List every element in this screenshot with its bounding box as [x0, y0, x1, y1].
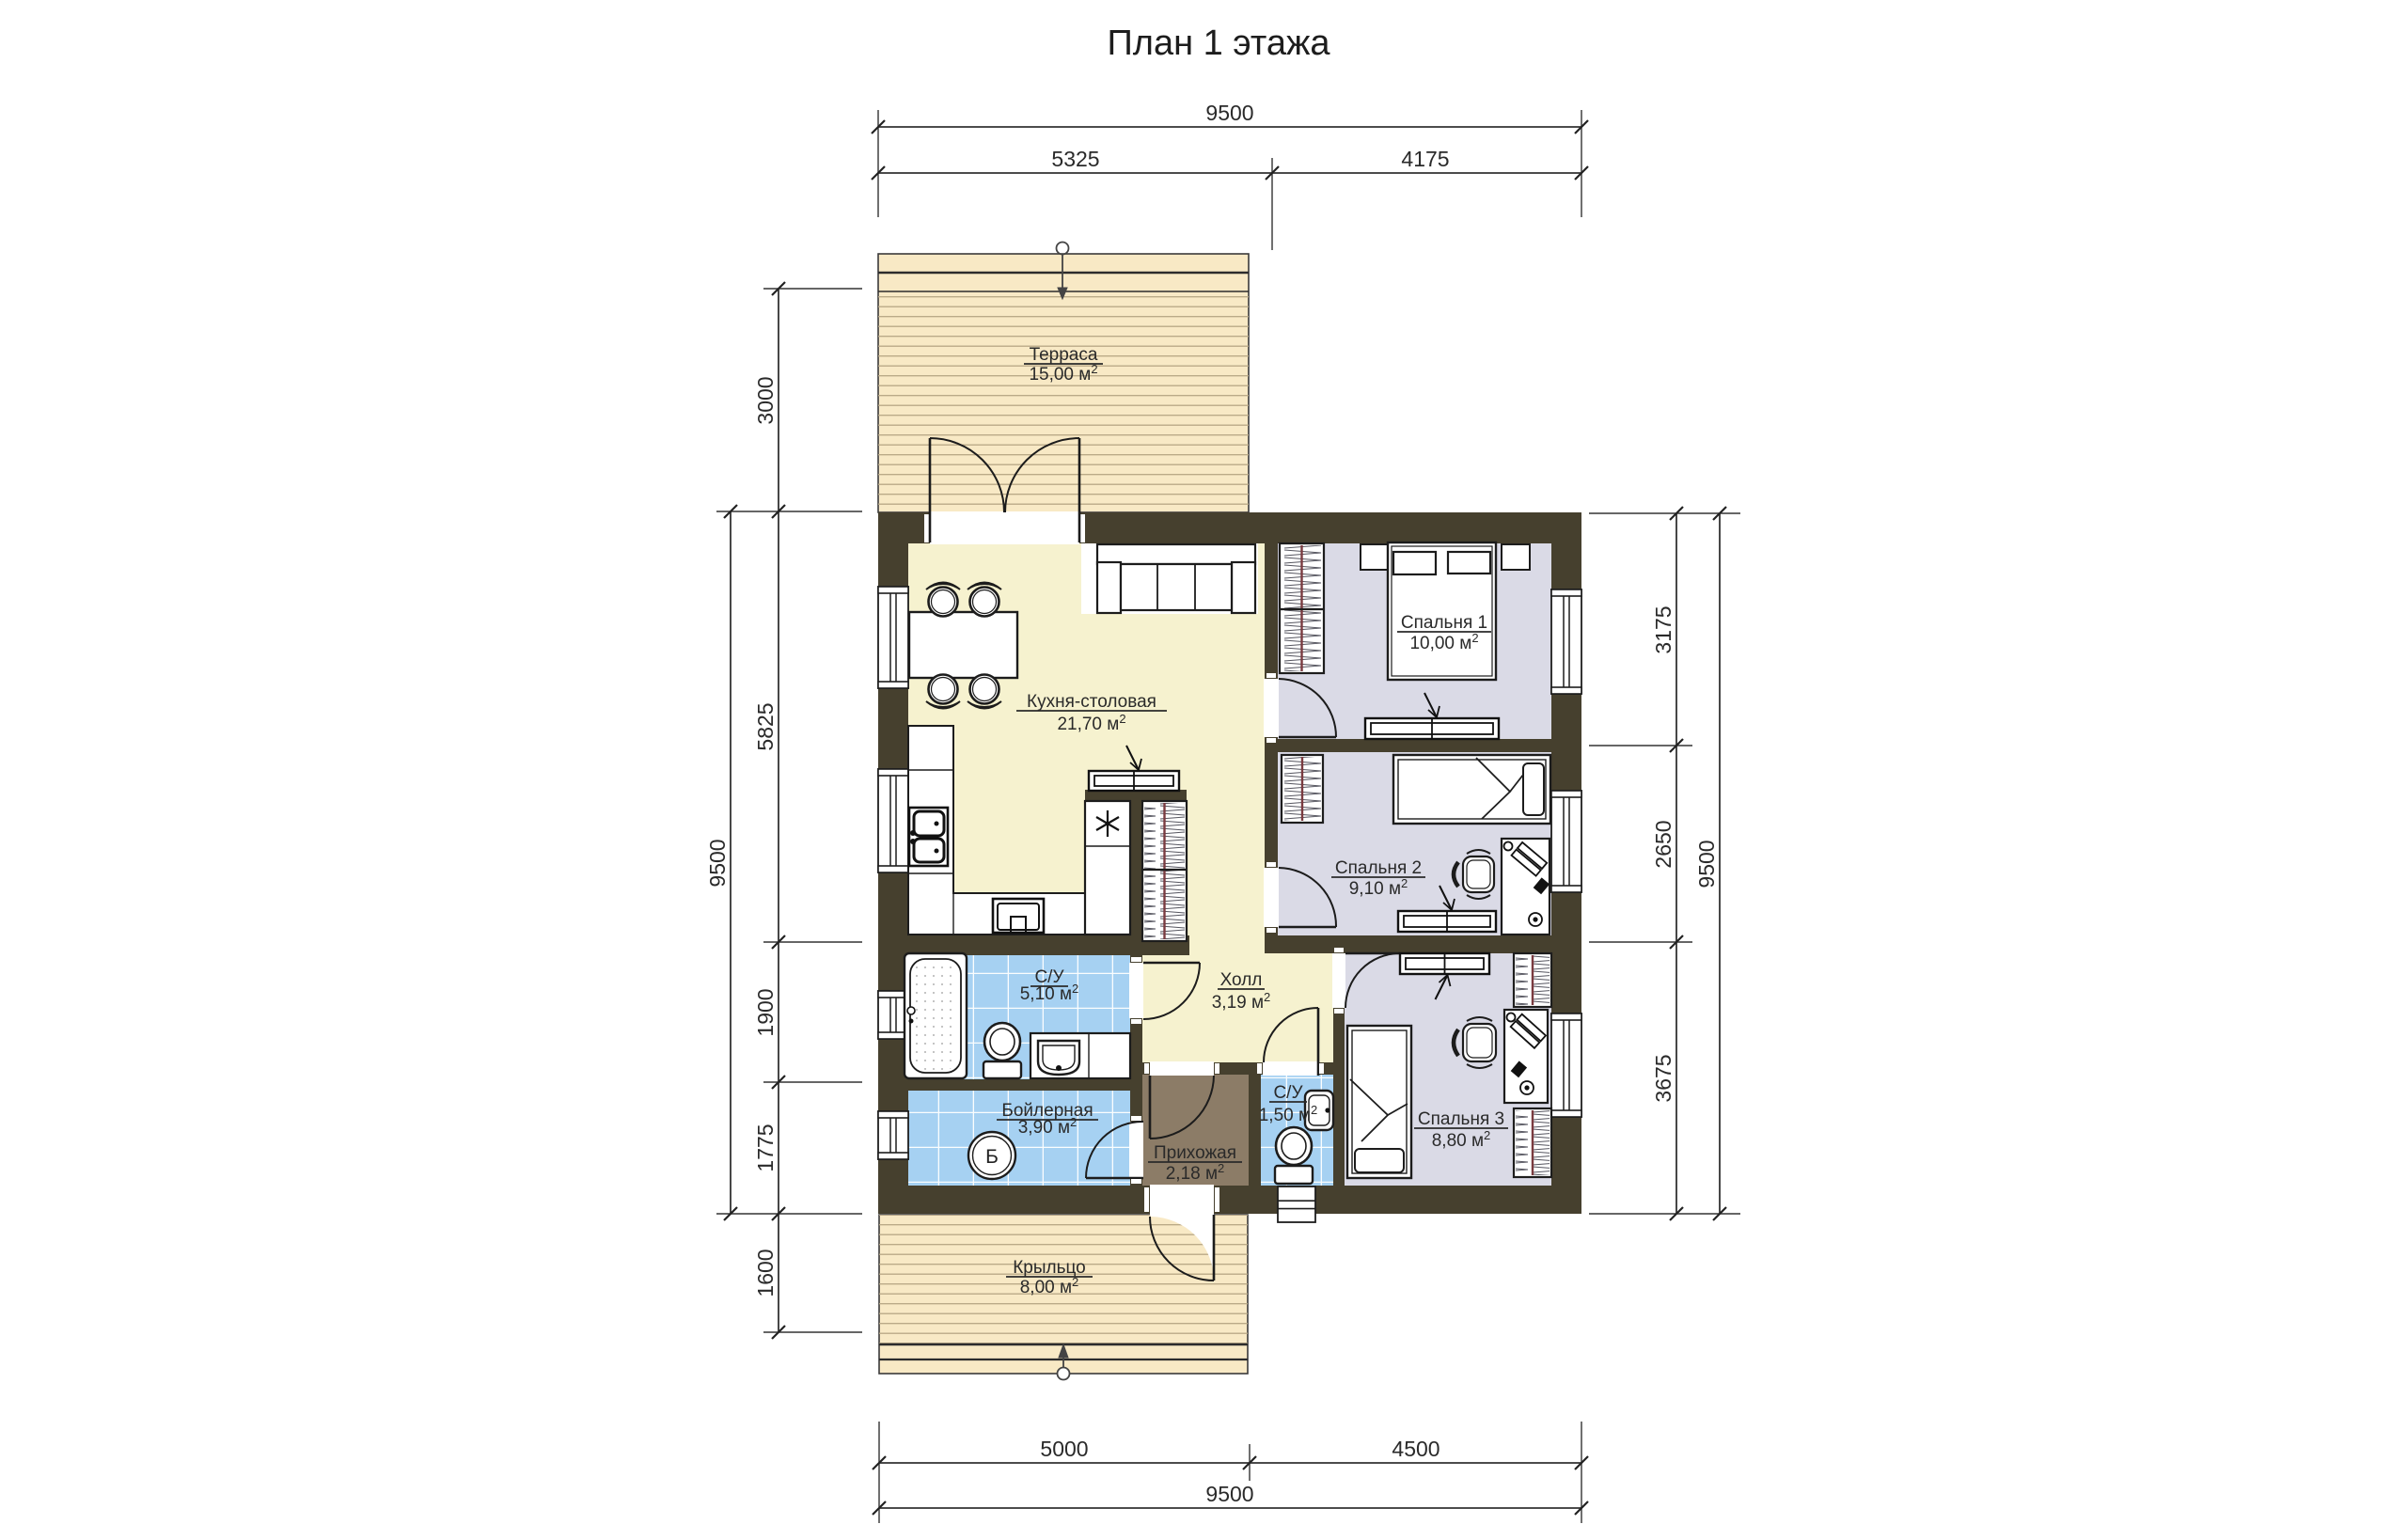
svg-text:Холл: Холл [1220, 970, 1263, 990]
svg-text:8,80 м2: 8,80 м2 [1432, 1128, 1491, 1151]
svg-text:2650: 2650 [1651, 820, 1675, 868]
svg-text:1,50 м2: 1,50 м2 [1259, 1103, 1318, 1125]
svg-text:9500: 9500 [1205, 101, 1253, 125]
svg-text:9,10 м2: 9,10 м2 [1349, 876, 1408, 899]
svg-text:9500: 9500 [1694, 840, 1719, 888]
svg-text:Спальня 1: Спальня 1 [1401, 613, 1487, 633]
svg-text:1600: 1600 [753, 1249, 778, 1296]
svg-text:5825: 5825 [753, 702, 778, 750]
svg-text:План 1 этажа: План 1 этажа [1107, 24, 1330, 63]
svg-text:10,00 м2: 10,00 м2 [1409, 631, 1478, 653]
svg-text:5000: 5000 [1040, 1437, 1088, 1461]
svg-text:3,19 м2: 3,19 м2 [1212, 990, 1271, 1013]
svg-text:21,70 м2: 21,70 м2 [1057, 712, 1125, 734]
svg-text:Спальня 2: Спальня 2 [1335, 858, 1422, 878]
svg-text:3675: 3675 [1651, 1054, 1675, 1102]
svg-text:5325: 5325 [1051, 147, 1099, 171]
svg-text:Терраса: Терраса [1030, 345, 1098, 365]
svg-text:1775: 1775 [753, 1124, 778, 1171]
svg-text:Кухня-столовая: Кухня-столовая [1027, 692, 1156, 712]
svg-text:1900: 1900 [753, 988, 778, 1036]
svg-text:С/У: С/У [1273, 1083, 1303, 1103]
svg-text:4500: 4500 [1392, 1437, 1439, 1461]
svg-text:9500: 9500 [1205, 1482, 1253, 1506]
svg-text:3175: 3175 [1651, 605, 1675, 653]
svg-text:2,18 м2: 2,18 м2 [1166, 1161, 1225, 1184]
svg-text:Прихожая: Прихожая [1154, 1143, 1236, 1163]
svg-text:3000: 3000 [753, 376, 778, 424]
svg-text:Спальня 3: Спальня 3 [1418, 1109, 1504, 1129]
svg-text:Б: Б [985, 1146, 999, 1168]
svg-text:8,00 м2: 8,00 м2 [1020, 1275, 1079, 1297]
svg-text:15,00 м2: 15,00 м2 [1029, 362, 1097, 385]
svg-text:3,90 м2: 3,90 м2 [1018, 1115, 1078, 1138]
svg-text:5,10 м2: 5,10 м2 [1020, 982, 1079, 1004]
svg-text:4175: 4175 [1401, 147, 1449, 171]
svg-text:9500: 9500 [705, 839, 730, 887]
